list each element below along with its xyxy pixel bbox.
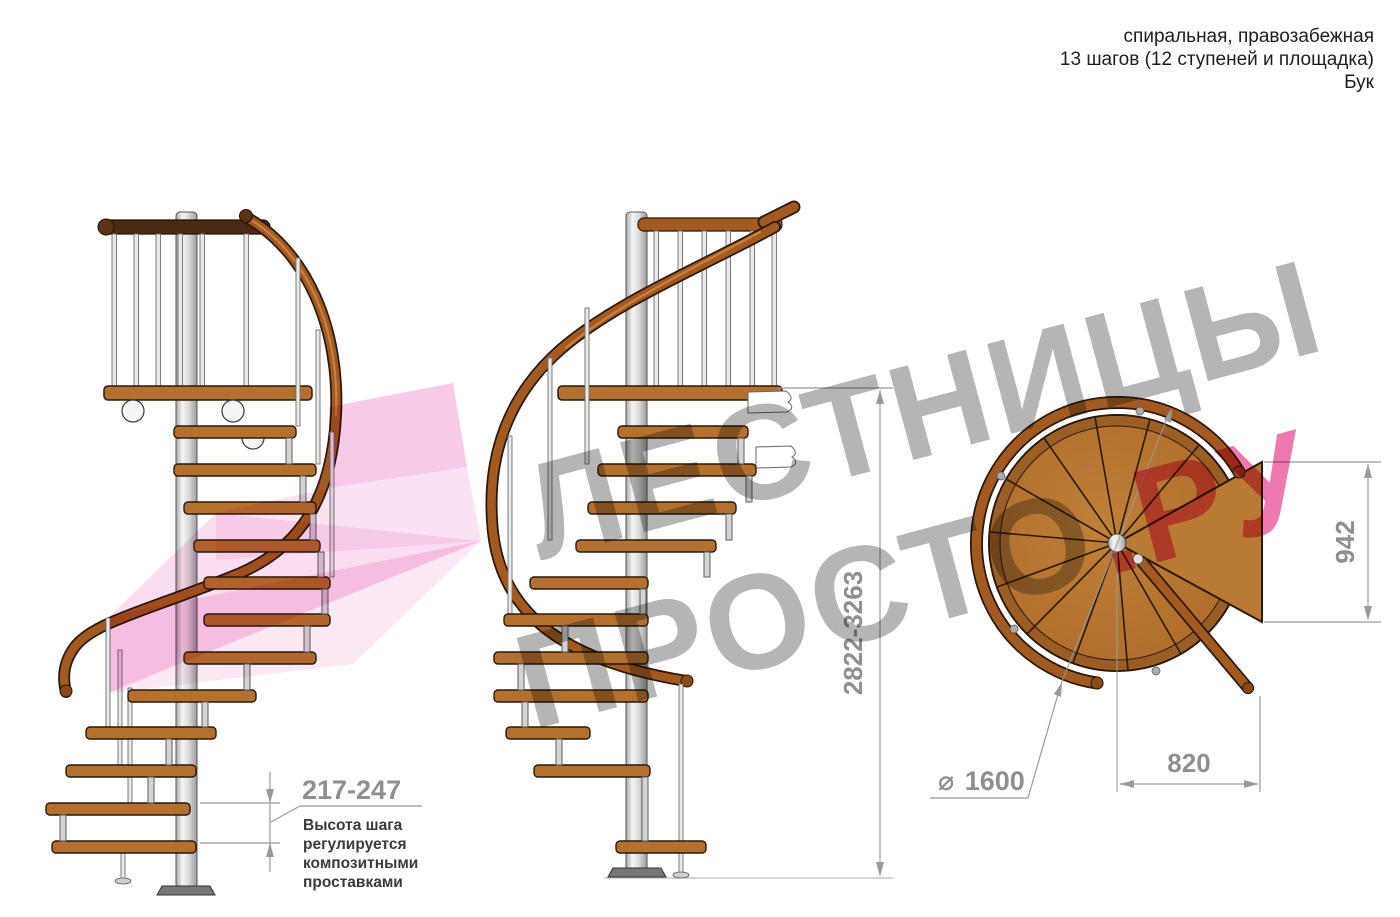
- header-line-3: Бук: [1344, 72, 1375, 93]
- note-line: Высота шага: [303, 817, 403, 834]
- pole-base-flange: [608, 868, 666, 877]
- top-platform: [104, 386, 312, 400]
- header-line-1: спиральная, правозабежная: [1124, 26, 1374, 47]
- pole-base-flange: [157, 886, 215, 895]
- dim-tread-width: 820: [1167, 748, 1210, 778]
- header: спиральная, правозабежная 13 шагов (12 с…: [1060, 26, 1375, 93]
- dim-step-height: 217-247: [302, 775, 401, 805]
- diameter-symbol: ⌀: [938, 766, 954, 796]
- note-line: регулируется: [303, 836, 406, 853]
- drawing-canvas: 2822-3263 942 820 ⌀ 1600 217-247: [0, 0, 1400, 917]
- note-line: проставками: [303, 874, 403, 891]
- staircase-drawing-page: 2822-3263 942 820 ⌀ 1600 217-247: [0, 0, 1400, 917]
- note-line: композитными: [303, 855, 418, 872]
- dim-landing-depth: 942: [1330, 520, 1360, 563]
- header-line-2: 13 шагов (12 ступеней и площадка): [1060, 49, 1374, 70]
- dim-diameter: ⌀ 1600: [938, 766, 1025, 796]
